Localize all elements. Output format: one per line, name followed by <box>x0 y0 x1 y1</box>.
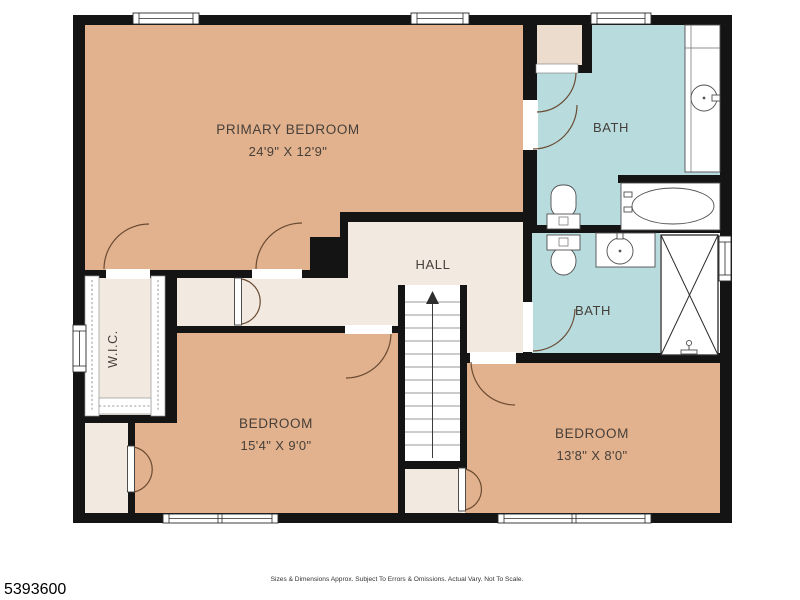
wall-stairs-right <box>460 285 467 470</box>
left-bedroom-floor-ext <box>133 421 177 515</box>
understair-closet-floor <box>403 468 462 515</box>
bathtub <box>621 183 720 230</box>
window <box>719 236 731 281</box>
door-panel-understair-closet <box>459 468 466 511</box>
wall-wic-right <box>165 270 177 418</box>
listing-id: 5393600 <box>4 581 66 598</box>
wall-tub <box>618 175 722 183</box>
toilet-top-bath <box>547 185 580 229</box>
opening-right-bedroom <box>470 352 516 364</box>
window <box>411 13 469 24</box>
window <box>163 514 278 523</box>
primary-bedroom-label: PRIMARY BEDROOM <box>216 122 360 137</box>
middle-bath-label: BATH <box>575 303 611 318</box>
wall-stairs-left <box>398 285 405 515</box>
primary-bedroom-dims: 24'9" X 12'9" <box>249 144 328 159</box>
tub-faucet-icon <box>624 192 632 197</box>
disclaimer-text: Sizes & Dimensions Approx. Subject To Er… <box>271 576 524 583</box>
opening-corridor-primary <box>252 269 302 279</box>
wall-stairs-bottom <box>398 461 467 469</box>
window <box>591 13 651 24</box>
hall-label: HALL <box>416 257 451 272</box>
left-bedroom-closet-floor <box>83 421 130 515</box>
opening-left-bedroom <box>345 325 392 334</box>
opening-primary-bath <box>523 100 538 150</box>
faucet-icon <box>712 95 720 101</box>
faucet-icon <box>617 233 623 239</box>
left-bedroom-dims: 15'4" X 9'0" <box>240 438 311 453</box>
top-bath-label: BATH <box>593 120 629 135</box>
shower-stall <box>661 235 718 355</box>
left-bedroom-label: BEDROOM <box>239 416 313 431</box>
vanity-sink-middle-bath <box>596 233 655 267</box>
window <box>73 325 86 372</box>
right-bedroom-dims: 13'8" X 8'0" <box>556 448 627 463</box>
window <box>133 13 199 24</box>
floor-plan-drawing: PRIMARY BEDROOM 24'9" X 12'9" BATH HALL … <box>0 0 800 600</box>
wall-hall-top <box>340 212 530 222</box>
floor-plan-page: PRIMARY BEDROOM 24'9" X 12'9" BATH HALL … <box>0 0 800 600</box>
opening-wic-primary <box>106 269 150 279</box>
hall-corridor-floor <box>177 274 348 330</box>
wic-label: W.I.C. <box>106 330 120 368</box>
vanity-sink-top-bath <box>685 25 720 172</box>
door-panel-corridor <box>235 278 242 325</box>
tub-drain-icon <box>624 207 632 212</box>
right-bedroom-label: BEDROOM <box>555 426 629 441</box>
opening-middle-bath <box>523 302 533 352</box>
door-panel-left-closet <box>128 446 135 492</box>
window <box>498 514 651 523</box>
wall-outer-left <box>73 15 85 523</box>
opening-bath-closet <box>536 64 578 73</box>
